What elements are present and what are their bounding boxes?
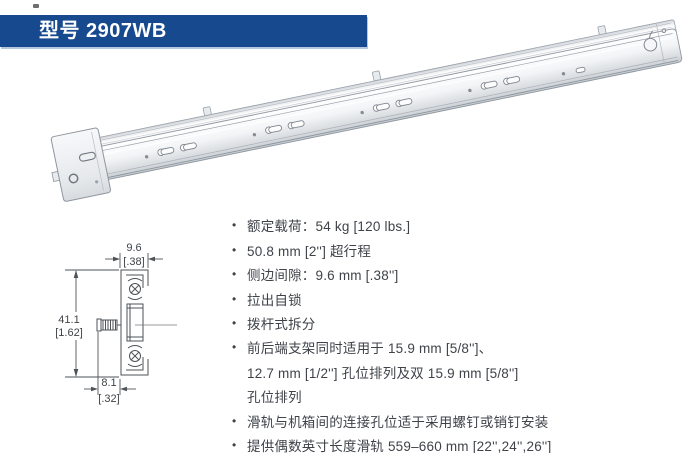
- slide-assembly: [45, 10, 685, 203]
- spec-line: • 50.8 mm [2''] 超行程: [225, 237, 693, 261]
- bullet-marker: •: [232, 414, 247, 428]
- height-dim-mm: 41.1: [58, 314, 79, 326]
- bullet-marker: •: [232, 267, 247, 281]
- bullet-marker: •: [232, 316, 247, 330]
- bullet-marker: •: [232, 243, 247, 257]
- spec-text: 额定载荷：54 kg [120 lbs.]: [247, 215, 410, 235]
- spec-text: 孔位排列: [247, 386, 302, 406]
- spec-text: 拉出自锁: [247, 289, 302, 309]
- spec-line: • 前后端支架同时适用于 15.9 mm [5/8'']、: [225, 335, 693, 359]
- spec-line: • 拨杆式拆分: [225, 311, 693, 335]
- offset-dim-in: [.32]: [98, 393, 119, 405]
- profile-outline: [121, 270, 148, 375]
- offset-dim-mm: 8.1: [101, 377, 116, 389]
- spec-line-continuation: 孔位排列: [225, 384, 693, 408]
- mounting-screw: [97, 319, 121, 331]
- spec-line-continuation: 12.7 mm [1/2''] 孔位排列及双 15.9 mm [5/8'']: [225, 360, 693, 384]
- spec-text: 滑轨与机箱间的连接孔位适于采用螺钉或销钉安装: [247, 411, 548, 431]
- bullet-marker: •: [232, 340, 247, 354]
- bullet-marker: •: [232, 218, 247, 232]
- spec-line: • 拉出自锁: [225, 286, 693, 310]
- spec-line: • 额定载荷：54 kg [120 lbs.]: [225, 213, 693, 237]
- spec-line: • 滑轨与机箱间的连接孔位适于采用螺钉或销钉安装: [225, 409, 693, 433]
- spec-text: 提供偶数英寸长度滑轨 559–660 mm [22'',24'',26'']: [247, 435, 551, 453]
- spec-text: 侧边间隙：9.6 mm [.38'']: [247, 264, 398, 284]
- spec-line: • 提供偶数英寸长度滑轨 559–660 mm [22'',24'',26'']: [225, 433, 693, 453]
- bullet-marker: •: [232, 292, 247, 306]
- width-dim-mm: 9.6: [126, 242, 141, 254]
- spec-text: 50.8 mm [2''] 超行程: [247, 240, 371, 260]
- catalog-page: 型号 2907WB: [0, 0, 697, 453]
- cross-section-diagram: 9.6 [.38] 41.1 [1.62] 8.1 [.32]: [40, 228, 215, 440]
- bullet-marker: •: [232, 438, 247, 452]
- drawer-slide-photo: [0, 0, 697, 215]
- spec-text: 前后端支架同时适用于 15.9 mm [5/8'']、: [247, 337, 492, 357]
- spec-text: 拨杆式拆分: [247, 313, 316, 333]
- spec-line: • 侧边间隙：9.6 mm [.38'']: [225, 262, 693, 286]
- spec-text: 12.7 mm [1/2''] 孔位排列及双 15.9 mm [5/8'']: [247, 362, 518, 382]
- spec-list: • 额定载荷：54 kg [120 lbs.] • 50.8 mm [2''] …: [225, 213, 693, 453]
- height-dim-in: [1.62]: [55, 327, 83, 339]
- width-dim-in: [.38]: [123, 256, 144, 268]
